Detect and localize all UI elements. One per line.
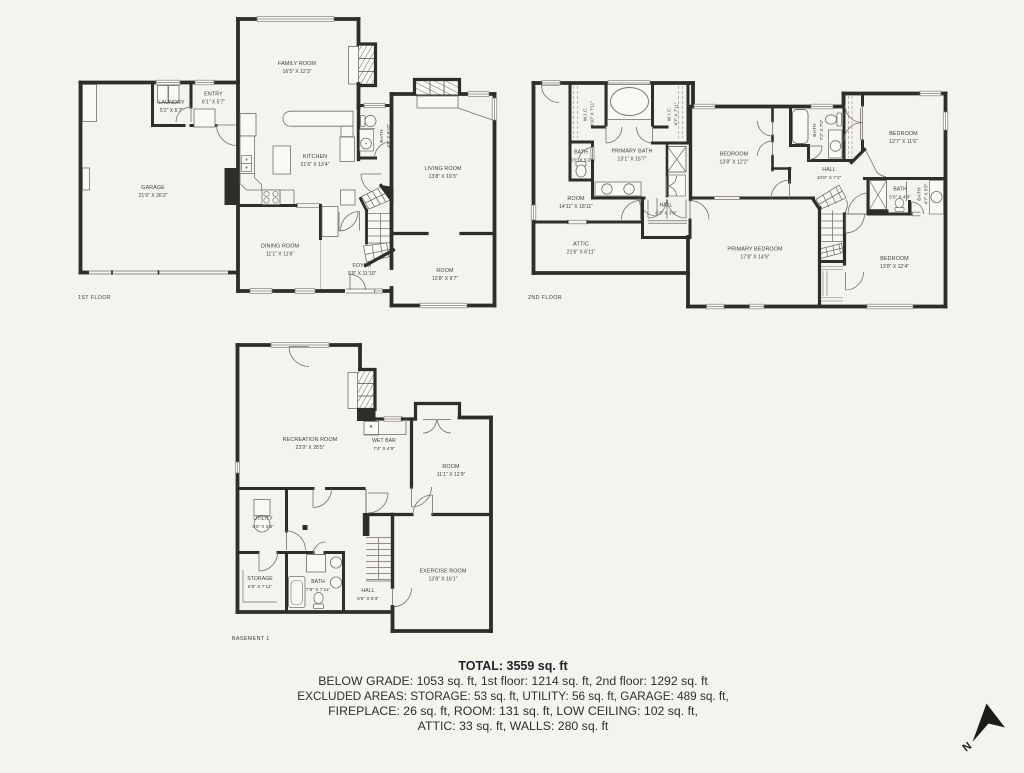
svg-text:10’6” X 7’2”: 10’6” X 7’2” xyxy=(817,175,842,181)
svg-text:4'7” X 5'5”: 4'7” X 5'5” xyxy=(924,183,929,204)
svg-text:6’5” X 7’11”: 6’5” X 7’11” xyxy=(248,584,273,590)
svg-text:16’5” X 12’3”: 16’5” X 12’3” xyxy=(283,69,312,75)
svg-text:BELOW GRADE: 1053 sq. ft, 1st: BELOW GRADE: 1053 sq. ft, 1st floor: 121… xyxy=(318,674,708,688)
svg-text:FIREPLACE: 26 sq. ft, ROOM: 13: FIREPLACE: 26 sq. ft, ROOM: 131 sq. ft, … xyxy=(328,704,698,718)
svg-text:2ND FLOOR: 2ND FLOOR xyxy=(528,295,562,301)
svg-text:BATH: BATH xyxy=(893,187,907,193)
svg-text:21’6” X 6’11”: 21’6” X 6’11” xyxy=(567,250,596,256)
svg-text:HALL: HALL xyxy=(822,167,835,173)
svg-text:HALL: HALL xyxy=(660,203,673,209)
svg-text:7’8” X 7’11”: 7’8” X 7’11” xyxy=(306,587,331,593)
svg-text:BEDROOM: BEDROOM xyxy=(720,152,749,158)
svg-text:KITCHEN: KITCHEN xyxy=(303,154,327,160)
svg-text:4'7” X 7'11”: 4'7” X 7'11” xyxy=(674,102,679,125)
svg-text:13’8” X 12’2”: 13’8” X 12’2” xyxy=(720,160,749,166)
svg-text:LIVING ROOM: LIVING ROOM xyxy=(424,166,461,172)
svg-text:TOTAL: 3559 sq. ft: TOTAL: 3559 sq. ft xyxy=(458,659,568,673)
svg-text:BEDROOM: BEDROOM xyxy=(880,256,909,262)
svg-text:DINING ROOM: DINING ROOM xyxy=(261,244,300,250)
svg-text:ROOM: ROOM xyxy=(567,196,585,202)
svg-text:BEDROOM: BEDROOM xyxy=(889,131,918,137)
svg-text:BASEMENT 1: BASEMENT 1 xyxy=(232,636,270,642)
svg-text:13’8” X 9’7”: 13’8” X 9’7” xyxy=(432,276,458,282)
svg-text:BATH: BATH xyxy=(379,129,385,143)
svg-text:14’11” X 18’11”: 14’11” X 18’11” xyxy=(559,204,593,210)
svg-text:6’5” X 6’8”: 6’5” X 6’8” xyxy=(252,524,274,529)
svg-text:ATTIC: ATTIC xyxy=(573,242,589,248)
svg-text:W.I.C.: W.I.C. xyxy=(667,107,673,122)
svg-text:9’9” X 11’10”: 9’9” X 11’10” xyxy=(348,271,377,277)
svg-text:17’8” X 14’9”: 17’8” X 14’9” xyxy=(741,255,770,261)
svg-text:UTILITY: UTILITY xyxy=(253,516,273,522)
svg-text:13’8” X 12’4”: 13’8” X 12’4” xyxy=(880,264,909,270)
svg-text:1ST FLOOR: 1ST FLOOR xyxy=(78,295,111,301)
svg-text:11’1” X 12’9”: 11’1” X 12’9” xyxy=(437,472,466,478)
svg-text:BATH: BATH xyxy=(812,123,818,137)
svg-text:13’1” X 15’7”: 13’1” X 15’7” xyxy=(618,157,647,163)
svg-text:HALL: HALL xyxy=(361,588,374,594)
svg-text:BATH: BATH xyxy=(574,150,588,156)
svg-text:ATTIC: 33 sq. ft, WALLS: 280 s: ATTIC: 33 sq. ft, WALLS: 280 sq. ft xyxy=(418,719,609,733)
svg-text:ROOM: ROOM xyxy=(442,464,460,470)
svg-text:6’1” X 5’7”: 6’1” X 5’7” xyxy=(202,100,226,106)
svg-text:6’3” X 3’0”: 6’3” X 3’0” xyxy=(655,211,677,216)
svg-text:PRIMARY BEDROOM: PRIMARY BEDROOM xyxy=(727,247,783,253)
svg-text:13’8” X 19’3”: 13’8” X 19’3” xyxy=(429,174,458,180)
svg-text:11’1” X 11’6”: 11’1” X 11’6” xyxy=(266,252,294,258)
svg-text:6’5” X 8’3”: 6’5” X 8’3” xyxy=(357,596,379,602)
svg-text:ROOM: ROOM xyxy=(436,268,454,274)
svg-text:23’9” X 28’5”: 23’9” X 28’5” xyxy=(296,445,325,451)
svg-text:LAUNDRY: LAUNDRY xyxy=(158,100,185,106)
svg-text:EXCLUDED AREAS: STORAGE: 53 sq: EXCLUDED AREAS: STORAGE: 53 sq. ft, UTIL… xyxy=(297,690,728,703)
svg-text:RECREATION ROOM: RECREATION ROOM xyxy=(283,437,338,443)
svg-text:W.I.C.: W.I.C. xyxy=(583,107,589,122)
svg-text:7’4” X 4’9”: 7’4” X 4’9” xyxy=(373,446,395,452)
svg-text:13’8” X 16’1”: 13’8” X 16’1” xyxy=(429,577,458,583)
svg-text:GARAGE: GARAGE xyxy=(141,185,165,191)
svg-text:4'10” X 7'11”: 4'10” X 7'11” xyxy=(590,101,595,127)
svg-text:WET BAR: WET BAR xyxy=(372,438,396,444)
svg-text:3’0” X 5’2”: 3’0” X 5’2” xyxy=(570,158,592,164)
svg-text:12’7” X 11’6”: 12’7” X 11’6” xyxy=(889,139,918,145)
svg-text:BATH: BATH xyxy=(917,187,923,201)
svg-text:EXERCISE ROOM: EXERCISE ROOM xyxy=(420,569,467,575)
svg-text:5’2” X 5’7”: 5’2” X 5’7” xyxy=(160,108,184,114)
svg-text:PRIMARY BATH: PRIMARY BATH xyxy=(611,149,652,155)
svg-text:21’6” X 26’2”: 21’6” X 26’2” xyxy=(139,193,168,199)
svg-text:STORAGE: STORAGE xyxy=(247,576,273,582)
svg-text:5’5” X 4’8”: 5’5” X 4’8” xyxy=(889,195,911,200)
svg-text:ENTRY: ENTRY xyxy=(204,92,223,98)
svg-text:7'2” X 7'0”: 7'2” X 7'0” xyxy=(819,119,824,140)
svg-text:21’6” X 13’4”: 21’6” X 13’4” xyxy=(301,162,330,168)
svg-text:FAMILY ROOM: FAMILY ROOM xyxy=(278,61,316,67)
svg-text:BATH: BATH xyxy=(311,579,325,585)
